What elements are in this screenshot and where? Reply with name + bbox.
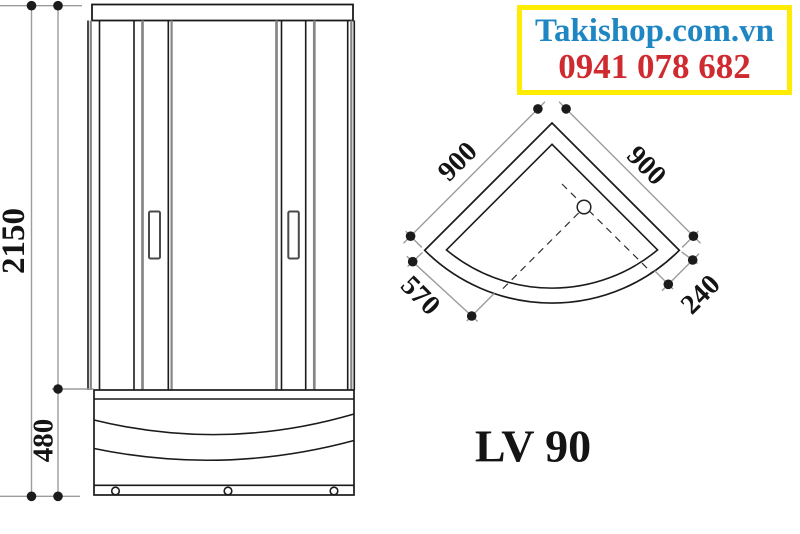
dim-dot (533, 104, 543, 114)
dim-dot (53, 492, 63, 502)
dim-label-base-height: 480 (27, 419, 59, 463)
dim-dot (27, 492, 37, 502)
dim-dot (27, 1, 37, 11)
dim-dot (406, 231, 416, 241)
dim-label-front-right: 240 (675, 269, 727, 321)
dim-dot (53, 384, 63, 394)
dim-label-total-height: 2150 (0, 208, 32, 274)
dim-label-left-side: 900 (432, 136, 484, 188)
left-door-handle (149, 212, 160, 259)
dim-dot (53, 1, 63, 11)
shower-tray-front (94, 390, 354, 495)
dim-dot (467, 311, 477, 321)
tray-outline (94, 390, 354, 495)
dim-dot (688, 255, 698, 265)
cabin-top-bar (92, 5, 353, 21)
phone-number-text: 0941 078 682 (558, 49, 751, 86)
drain-hole (577, 200, 591, 214)
seller-banner: Takishop.com.vn 0941 078 682 (517, 5, 792, 95)
front-elevation-view: 2150 480 (0, 1, 354, 501)
model-label: LV 90 (475, 421, 591, 472)
panel-lines-gray (91, 21, 352, 391)
plan-view: 900 900 570 240 (394, 102, 726, 322)
dim-dot (689, 231, 699, 241)
front-dimensions: 2150 480 (0, 1, 94, 501)
dim-dot (664, 280, 674, 290)
dim-dot (408, 257, 418, 267)
dim-label-front-left: 570 (394, 270, 446, 322)
dim-label-right-side: 900 (620, 140, 672, 192)
website-text: Takishop.com.vn (535, 14, 774, 50)
right-door-handle (288, 212, 299, 259)
dim-dot (561, 104, 571, 114)
